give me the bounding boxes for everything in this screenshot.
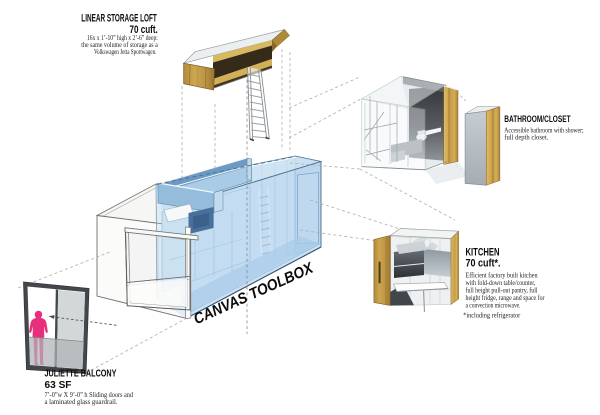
svg-text:Volkswagen Jetta Sportwagen.: Volkswagen Jetta Sportwagen.: [94, 47, 156, 56]
svg-text:BATHROOM/CLOSET: BATHROOM/CLOSET: [504, 114, 570, 125]
svg-text:JULIETTE BALCONY: JULIETTE BALCONY: [45, 369, 117, 380]
svg-text:full depth closet.: full depth closet.: [504, 133, 548, 142]
svg-text:LINEAR STORAGE LOFT: LINEAR STORAGE LOFT: [81, 13, 157, 25]
svg-text:*including refrigerator: *including refrigerator: [463, 311, 520, 320]
svg-text:a laminated glass guardrail.: a laminated glass guardrail.: [45, 397, 118, 406]
svg-text:70 cuft*.: 70 cuft*.: [466, 258, 501, 270]
svg-text:a convection microwave.: a convection microwave.: [466, 301, 521, 310]
